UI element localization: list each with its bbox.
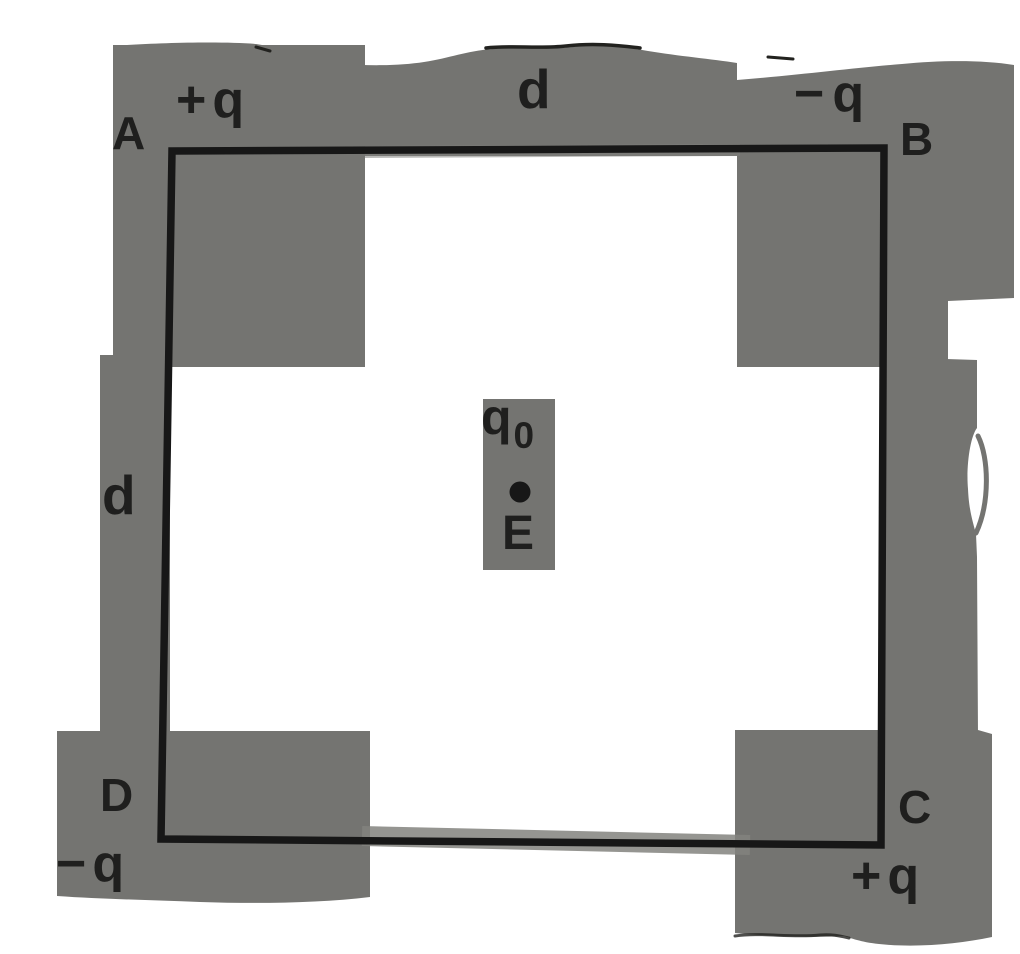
corner-label-c: C bbox=[898, 784, 931, 830]
corner-label-d: D bbox=[100, 772, 133, 818]
test-charge-symbol: q bbox=[481, 389, 512, 445]
highlight-bracket-sliver bbox=[976, 436, 986, 533]
test-charge-label: q0 bbox=[481, 392, 532, 442]
corner-label-b: B bbox=[900, 116, 933, 162]
highlight-left-strip bbox=[100, 355, 170, 736]
bottom-block-edge-line bbox=[735, 935, 849, 938]
corner-label-a: A bbox=[112, 110, 145, 156]
test-charge-subscript: 0 bbox=[514, 415, 535, 456]
highlight-bottom-right-block bbox=[735, 730, 992, 946]
highlight-top-right-block bbox=[737, 61, 1014, 367]
charge-label-top-left: +q bbox=[176, 74, 250, 126]
center-point-dot bbox=[510, 482, 531, 503]
charge-label-bottom-right: +q bbox=[851, 850, 925, 902]
highlight-right-strip bbox=[885, 357, 978, 736]
charge-label-bottom-left: −q bbox=[56, 838, 130, 890]
field-point-label: E bbox=[502, 510, 534, 558]
figure-canvas: A +q d −q B d q0 E D −q C +q bbox=[0, 0, 1020, 954]
charge-label-top-right: −q bbox=[794, 68, 872, 120]
diagram-artwork bbox=[0, 0, 1020, 954]
distance-label-top: d bbox=[517, 62, 551, 117]
edge-squiggle-right bbox=[768, 57, 793, 59]
distance-label-left: d bbox=[102, 468, 136, 523]
